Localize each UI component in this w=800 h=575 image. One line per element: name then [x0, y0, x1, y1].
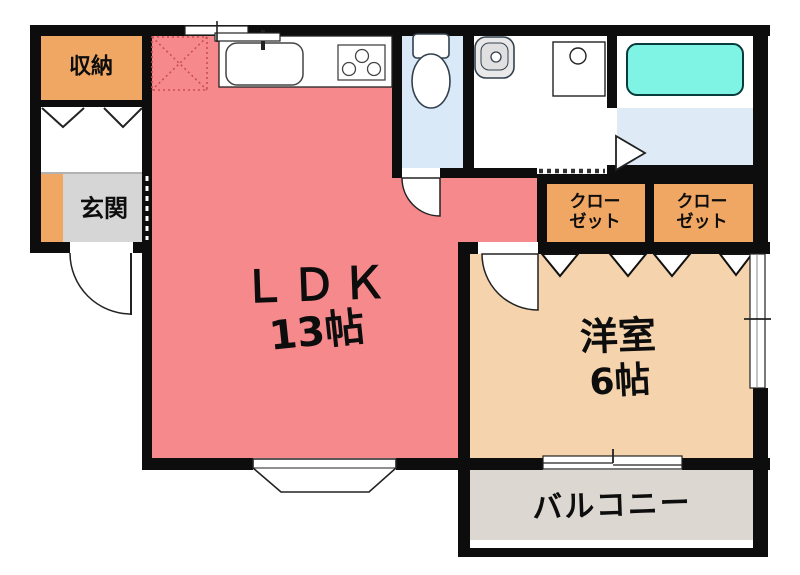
- wall-segment: [41, 100, 142, 107]
- wash-basin-icon: [475, 37, 514, 78]
- wall-segment: [458, 458, 543, 470]
- washing-machine-icon: [553, 42, 605, 96]
- wall-segment: [142, 458, 253, 470]
- entrance-label: 玄関: [80, 196, 128, 221]
- floor-plan: 収納 玄関 ＬＤＫ 13帖 洋室 6帖 クロー ゼット クロー ゼット バルコニ…: [0, 0, 800, 575]
- wall-segment: [645, 174, 654, 252]
- gas-stove-icon: [338, 45, 385, 80]
- wall-segment: [463, 36, 474, 178]
- wall-segment: [753, 25, 768, 254]
- wall-segment: [30, 242, 70, 253]
- door-gap: [478, 242, 538, 254]
- bathtub-icon: [627, 44, 743, 95]
- closet-2-line1: クロー: [677, 192, 728, 212]
- storage-label: 収納: [69, 55, 113, 78]
- closet-1-line1: クロー: [570, 192, 621, 212]
- bay-window-body: [253, 459, 396, 492]
- bay-window-icon: [253, 459, 396, 492]
- wall-segment: [392, 25, 402, 178]
- wall-segment: [458, 242, 470, 470]
- toilet-icon: [412, 34, 450, 108]
- closet-2-line2: ゼット: [677, 212, 728, 232]
- wall-segment: [538, 242, 770, 254]
- wall-segment: [142, 25, 152, 470]
- hallway-floor: [458, 178, 537, 242]
- balcony-edge-strip: [470, 540, 753, 548]
- wall-segment: [607, 36, 617, 108]
- wall-segment: [607, 165, 768, 184]
- entrance-corridor-floor: [41, 107, 142, 174]
- ldk-label: ＬＤＫ: [241, 260, 393, 311]
- door-swing-arc: [70, 253, 131, 314]
- entrance-door-icon: [70, 242, 133, 315]
- wall-segment: [30, 25, 41, 253]
- wall-segment: [440, 168, 537, 178]
- wall-segment: [537, 174, 547, 252]
- wall-segment: [458, 548, 768, 557]
- western-room-label: 洋室: [579, 316, 656, 359]
- wall-segment: [753, 388, 768, 556]
- door-gap: [402, 168, 440, 178]
- closet-2-label: クロー ゼット: [677, 192, 728, 232]
- western-room-size-label: 6帖: [589, 362, 652, 403]
- wall-segment: [458, 458, 470, 555]
- toilet-bowl: [412, 54, 450, 108]
- door-gap: [70, 242, 133, 253]
- ldk-size-label: 13帖: [267, 306, 367, 358]
- balcony-label: バルコニー: [532, 487, 692, 524]
- entrance-step: [41, 174, 63, 242]
- window-bar: [215, 33, 280, 41]
- closet-1-line2: ゼット: [570, 212, 621, 232]
- closet-1-label: クロー ゼット: [570, 192, 621, 232]
- washer-door: [570, 48, 586, 64]
- basin-drain: [491, 52, 501, 62]
- wall-segment: [537, 174, 617, 184]
